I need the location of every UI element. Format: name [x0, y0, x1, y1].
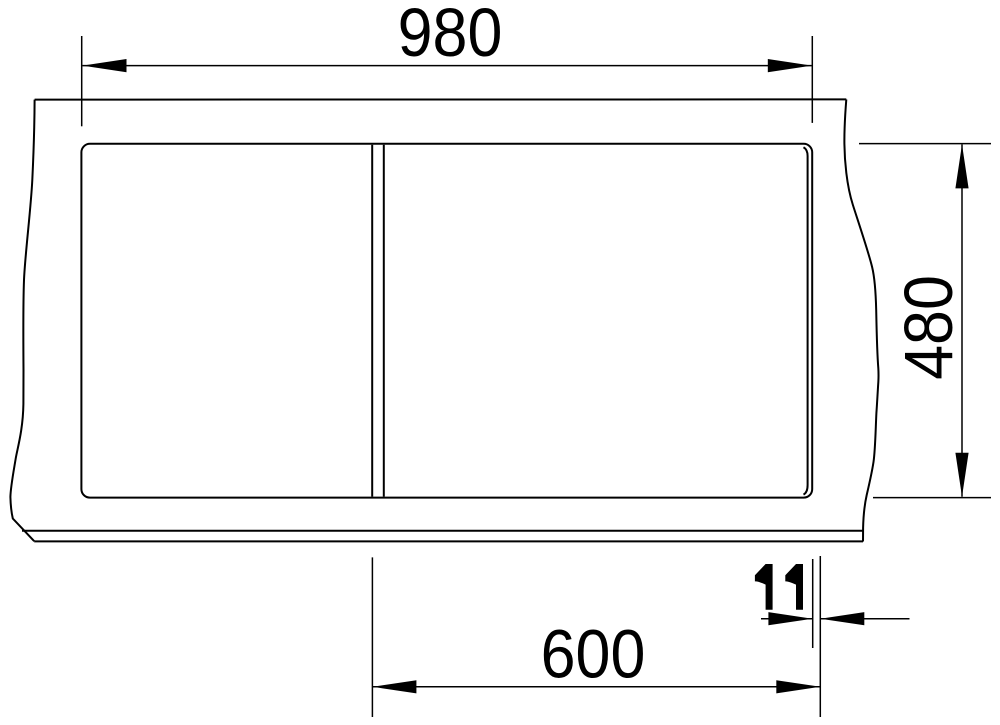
svg-text:600: 600 — [541, 615, 646, 692]
svg-text:980: 980 — [398, 0, 503, 71]
svg-text:480: 480 — [889, 275, 966, 380]
